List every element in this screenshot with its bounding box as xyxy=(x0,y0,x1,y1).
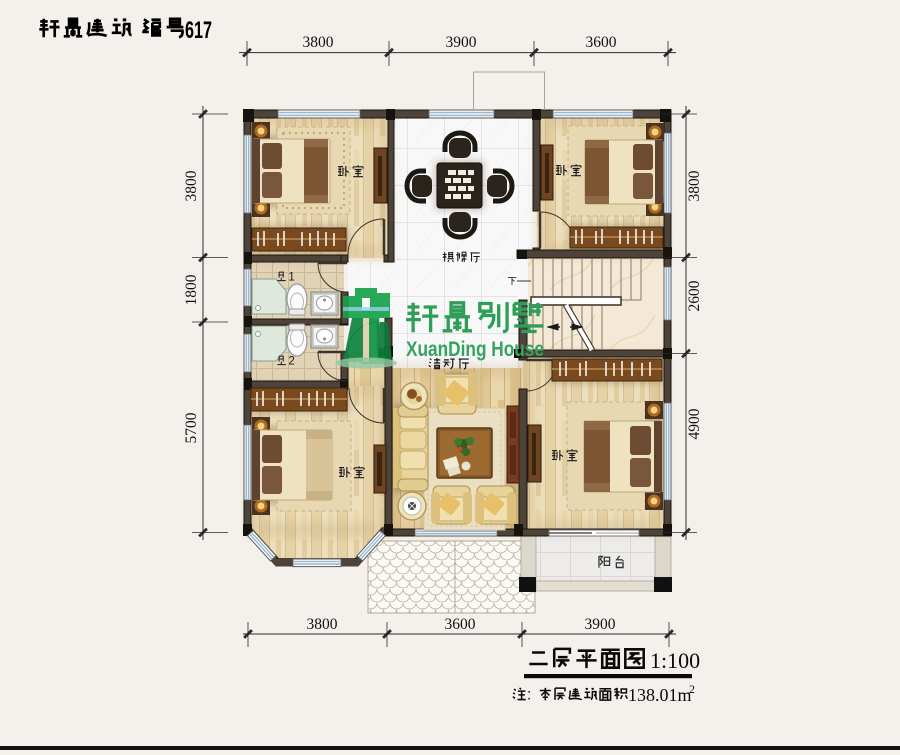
svg-text:1: 1 xyxy=(288,270,294,283)
svg-text:2600: 2600 xyxy=(686,280,703,311)
svg-text:3800: 3800 xyxy=(686,170,703,201)
svg-text:4900: 4900 xyxy=(686,408,703,439)
svg-text:XuanDing House: XuanDing House xyxy=(406,338,544,361)
svg-text:3900: 3900 xyxy=(446,34,477,51)
svg-text:2: 2 xyxy=(288,354,294,367)
svg-text:1:100: 1:100 xyxy=(650,648,700,673)
svg-text:138.01m: 138.01m xyxy=(628,685,692,705)
svg-text:3600: 3600 xyxy=(445,616,476,633)
svg-text:2: 2 xyxy=(689,682,695,696)
svg-text:617: 617 xyxy=(185,17,212,44)
svg-text::: : xyxy=(527,687,531,704)
svg-text:3900: 3900 xyxy=(585,616,616,633)
svg-text:3600: 3600 xyxy=(586,34,617,51)
svg-text:3800: 3800 xyxy=(303,34,334,51)
svg-text:1800: 1800 xyxy=(183,274,200,305)
svg-text:3800: 3800 xyxy=(183,170,200,201)
svg-text:5700: 5700 xyxy=(183,412,200,443)
svg-text:3800: 3800 xyxy=(307,616,338,633)
